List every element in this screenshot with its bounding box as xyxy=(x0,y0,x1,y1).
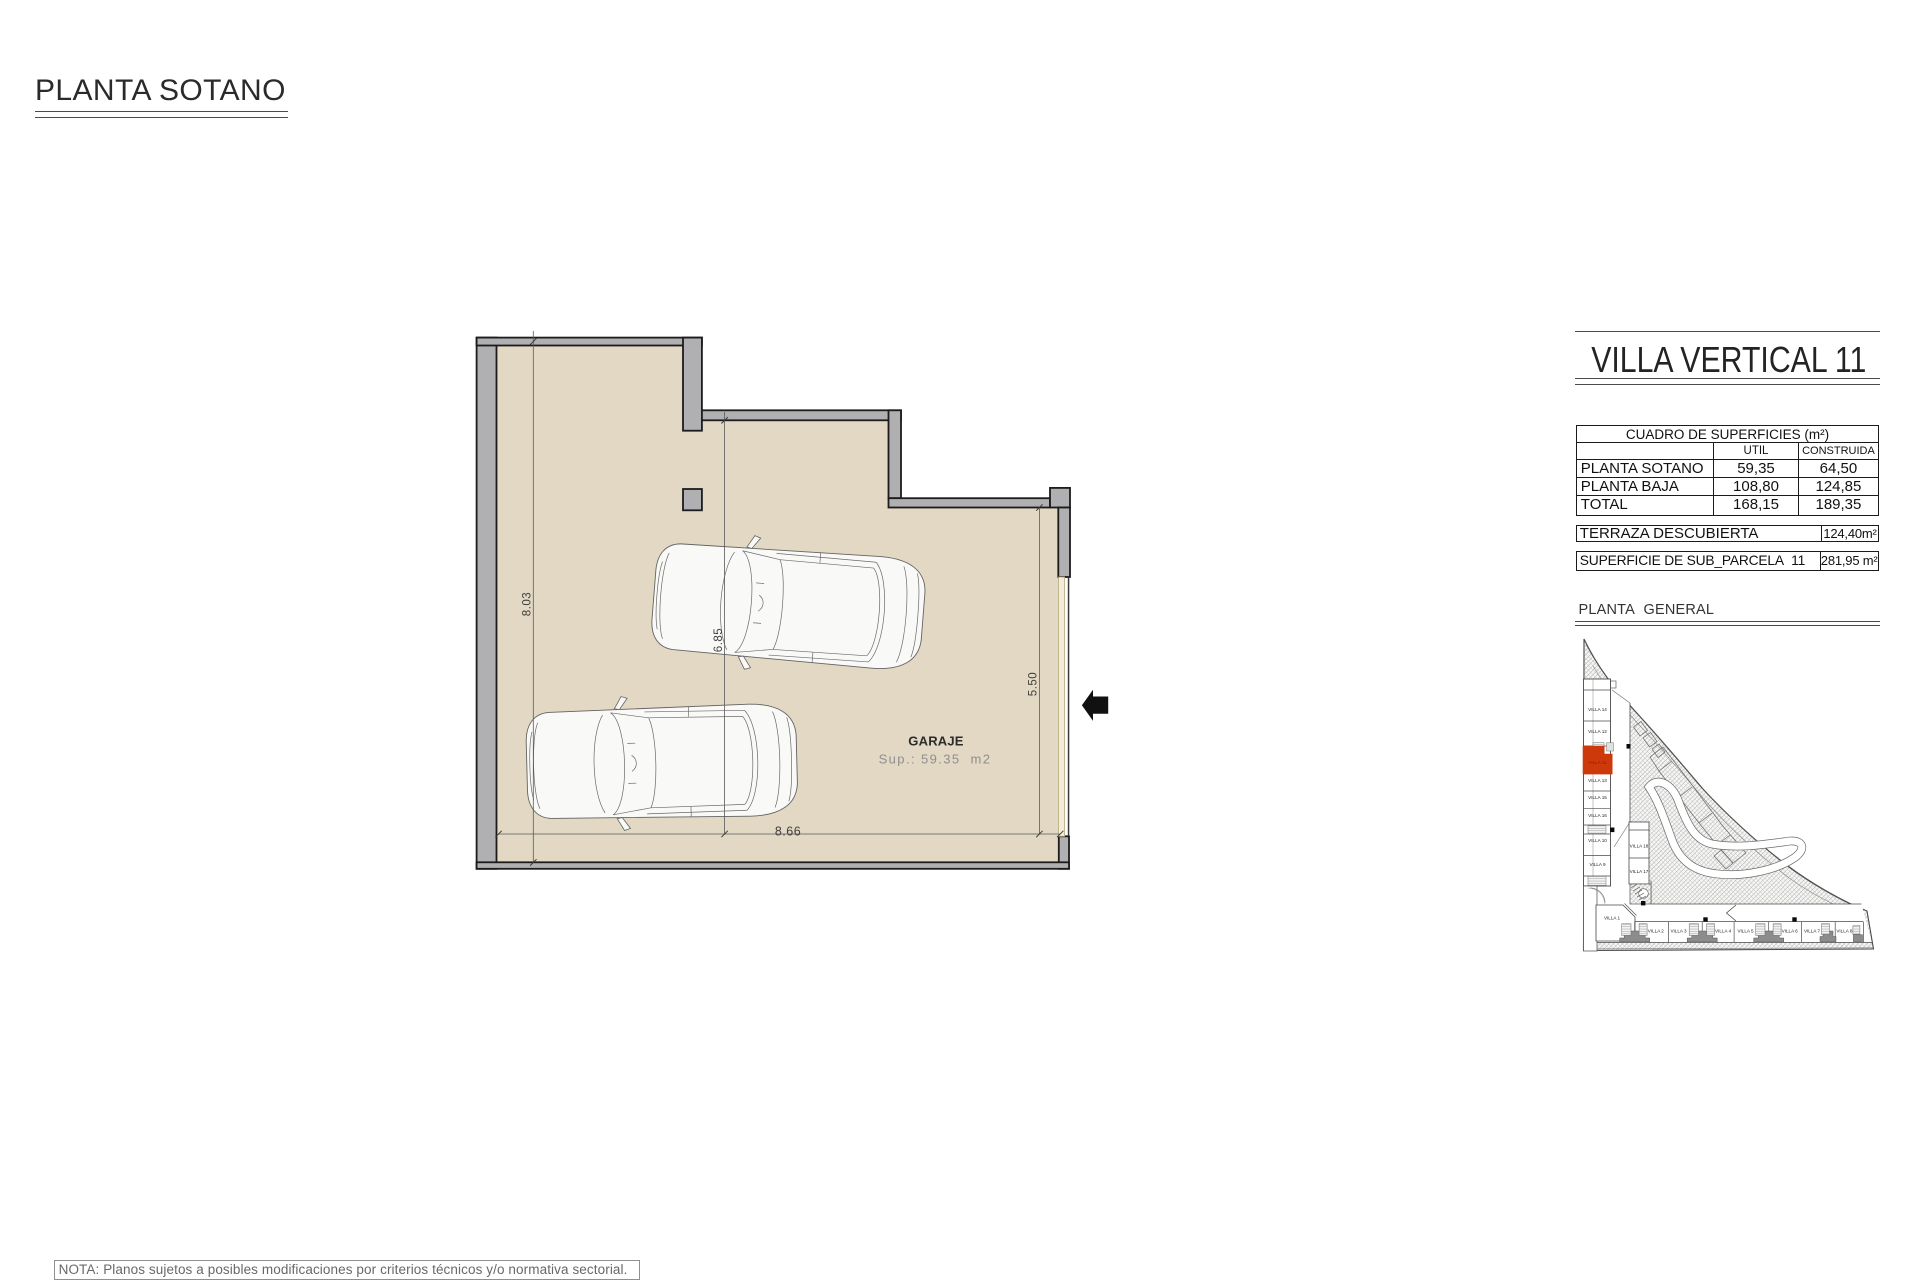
svg-text:VILLA 6: VILLA 6 xyxy=(1782,929,1799,934)
svg-text:VILLA 15: VILLA 15 xyxy=(1588,795,1607,800)
svg-text:VILLA 14: VILLA 14 xyxy=(1588,707,1607,712)
svg-text:VILLA 17: VILLA 17 xyxy=(1630,869,1649,874)
svg-text:VILLA 12: VILLA 12 xyxy=(1588,729,1607,734)
svg-text:VILLA 8: VILLA 8 xyxy=(1836,929,1853,934)
svg-text:8.66: 8.66 xyxy=(775,825,801,839)
svg-text:VILLA 18: VILLA 18 xyxy=(1630,844,1649,849)
svg-text:VILLA 16: VILLA 16 xyxy=(1588,813,1607,818)
svg-text:VILLA 1: VILLA 1 xyxy=(1604,916,1621,921)
svg-text:VILLA 9: VILLA 9 xyxy=(1589,862,1606,867)
svg-text:VILLA 2: VILLA 2 xyxy=(1648,929,1665,934)
svg-text:VILLA 3: VILLA 3 xyxy=(1670,929,1687,934)
svg-text:6.85: 6.85 xyxy=(713,628,725,652)
svg-text:VILLA 11: VILLA 11 xyxy=(1588,760,1607,765)
svg-text:5.50: 5.50 xyxy=(1028,672,1040,696)
svg-text:GARAJE: GARAJE xyxy=(908,734,964,749)
svg-text:VILLA 5: VILLA 5 xyxy=(1737,929,1754,934)
svg-text:VILLA 13: VILLA 13 xyxy=(1588,778,1607,783)
svg-text:VILLA 7: VILLA 7 xyxy=(1804,929,1821,934)
svg-text:VILLA 4: VILLA 4 xyxy=(1715,929,1732,934)
svg-text:Sup.: 59.35 m2: Sup.: 59.35 m2 xyxy=(879,752,992,767)
svg-text:8.03: 8.03 xyxy=(522,592,534,616)
svg-text:VILLA 10: VILLA 10 xyxy=(1588,838,1607,843)
